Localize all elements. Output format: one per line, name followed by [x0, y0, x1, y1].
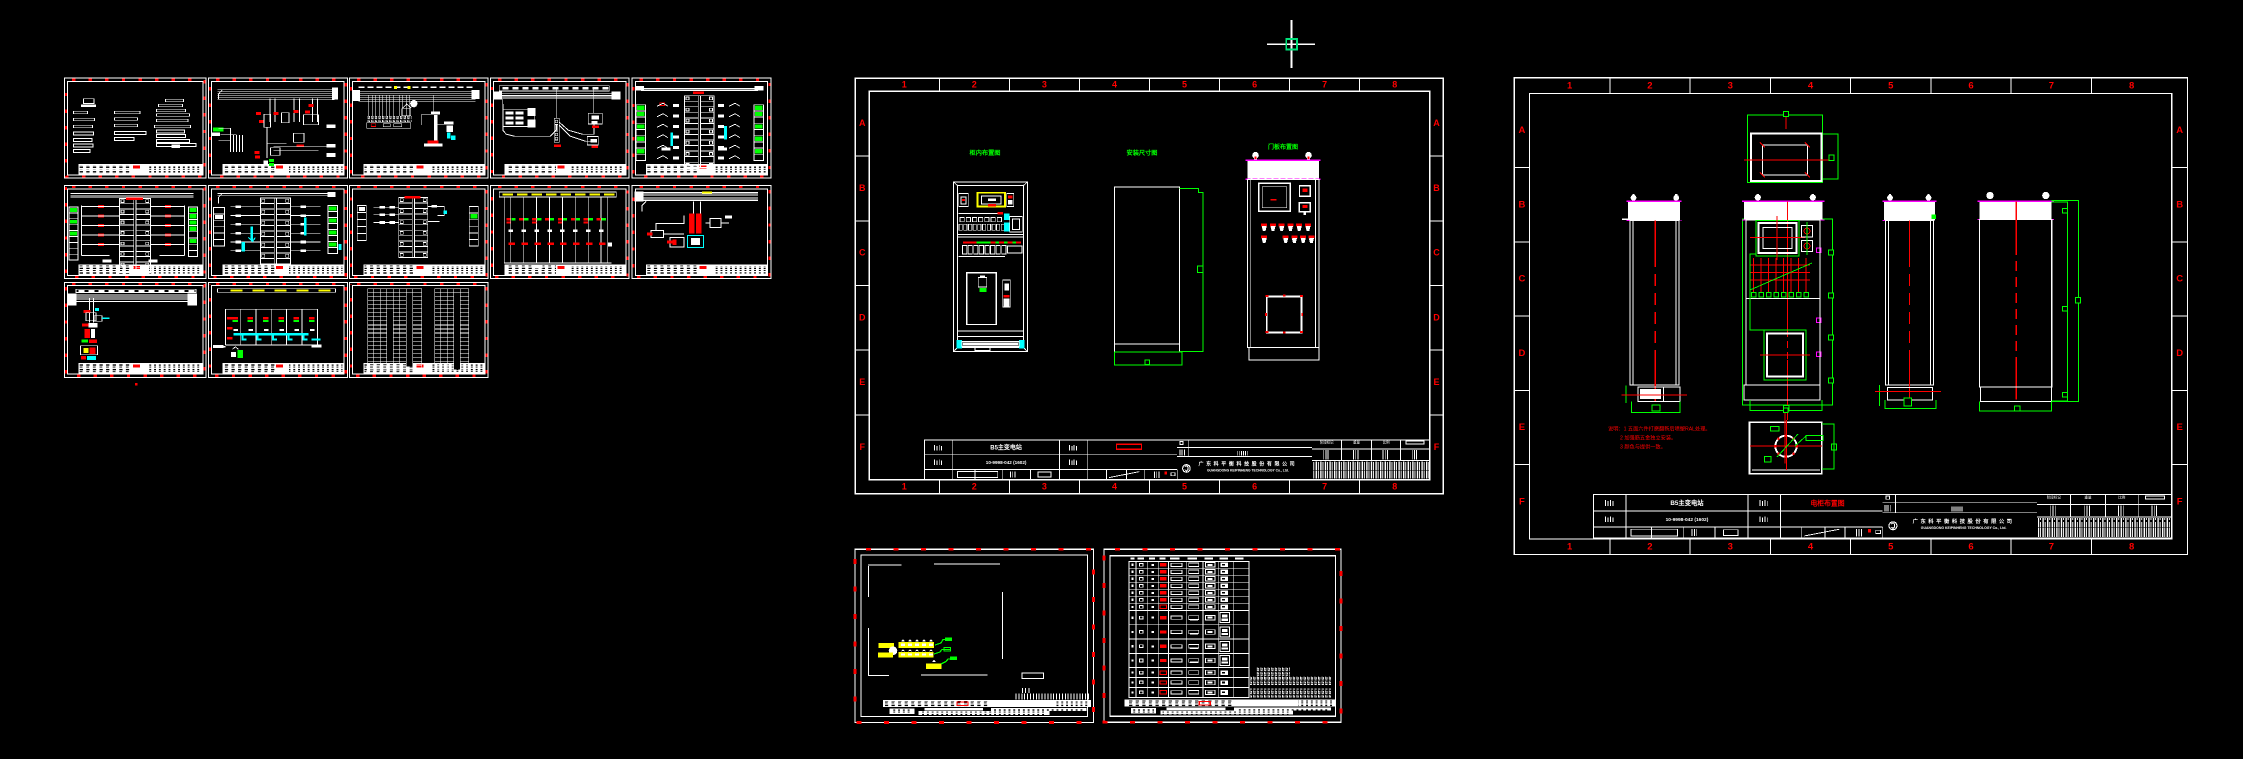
svg-text:E: E — [2176, 422, 2182, 433]
svg-text:8: 8 — [1392, 482, 1397, 492]
svg-text:B5主变电站: B5主变电站 — [1670, 498, 1704, 507]
svg-text:广东科平衡科技股份有限公司: 广东科平衡科技股份有限公司 — [1198, 461, 1297, 468]
svg-text:重量: 重量 — [1353, 440, 1360, 445]
svg-text:B: B — [1433, 183, 1440, 193]
svg-text:10-9998-042 (1602): 10-9998-042 (1602) — [1666, 517, 1709, 523]
svg-text:7: 7 — [1322, 80, 1327, 90]
svg-text:B: B — [859, 183, 866, 193]
svg-text:10-9998-042 (1602): 10-9998-042 (1602) — [986, 460, 1027, 465]
svg-text:安装尺寸图: 安装尺寸图 — [1127, 149, 1158, 157]
svg-text:阶段标记: 阶段标记 — [2047, 494, 2062, 499]
svg-text:C: C — [1433, 248, 1440, 258]
svg-text:F: F — [860, 442, 866, 452]
svg-text:7: 7 — [2049, 80, 2054, 91]
svg-text:2 加强筋五金独立安装。: 2 加强筋五金独立安装。 — [1620, 434, 1676, 442]
svg-text:1: 1 — [1567, 542, 1573, 553]
svg-text:3: 3 — [1042, 482, 1047, 492]
svg-text:D: D — [2176, 348, 2183, 359]
svg-text:8: 8 — [2129, 80, 2134, 91]
svg-text:A: A — [1518, 125, 1525, 136]
svg-text:8: 8 — [2129, 542, 2134, 553]
svg-text:F: F — [1434, 442, 1440, 452]
svg-text:4: 4 — [1112, 80, 1117, 90]
svg-text:A: A — [2176, 125, 2183, 136]
svg-text:5: 5 — [1888, 80, 1894, 91]
svg-text:1: 1 — [902, 80, 907, 90]
svg-text:F: F — [2177, 496, 2183, 507]
svg-text:说明：1 五面六件打磨翻新后喷塑RAL处理。: 说明：1 五面六件打磨翻新后喷塑RAL处理。 — [1608, 425, 1711, 433]
svg-text:8: 8 — [1392, 80, 1397, 90]
svg-text:GUANGDONG KEIPINHENG TECHNOLOG: GUANGDONG KEIPINHENG TECHNOLOGY Co., Ltd… — [1921, 526, 2007, 530]
svg-text:比例: 比例 — [2118, 494, 2126, 499]
svg-text:1: 1 — [902, 482, 907, 492]
svg-text:GUANGDONG KEIPINHENG TECHNOLOG: GUANGDONG KEIPINHENG TECHNOLOGY Co., Ltd… — [1207, 469, 1289, 473]
svg-text:A: A — [1433, 118, 1440, 128]
svg-text:6: 6 — [1252, 482, 1257, 492]
svg-text:门板布置图: 门板布置图 — [1268, 143, 1298, 151]
svg-text:柜内布置图: 柜内布置图 — [969, 149, 1001, 157]
svg-text:3: 3 — [1728, 80, 1733, 91]
svg-text:3: 3 — [1042, 80, 1047, 90]
svg-text:B5主变电站: B5主变电站 — [990, 444, 1022, 452]
svg-text:4: 4 — [1808, 542, 1814, 553]
svg-text:6: 6 — [1968, 80, 1973, 91]
svg-text:E: E — [1434, 377, 1440, 387]
svg-text:1: 1 — [1567, 80, 1573, 91]
svg-text:C: C — [2176, 274, 2183, 285]
svg-text:电柜布置图: 电柜布置图 — [1810, 498, 1844, 507]
svg-text:4: 4 — [1112, 482, 1117, 492]
svg-text:5: 5 — [1182, 80, 1187, 90]
svg-text:阶段标记: 阶段标记 — [1320, 440, 1334, 445]
svg-text:比例: 比例 — [1383, 440, 1390, 445]
svg-text:广东科平衡科技股份有限公司: 广东科平衡科技股份有限公司 — [1913, 517, 2015, 525]
svg-text:4: 4 — [1808, 80, 1814, 91]
svg-text:D: D — [1433, 312, 1440, 322]
svg-text:5: 5 — [1182, 482, 1187, 492]
svg-text:6: 6 — [1252, 80, 1257, 90]
svg-text:D: D — [1518, 348, 1525, 359]
svg-text:3 颜色与提供一致。: 3 颜色与提供一致。 — [1620, 443, 1666, 451]
svg-text:C: C — [859, 248, 866, 258]
svg-text:重量: 重量 — [2084, 494, 2092, 499]
svg-text:E: E — [859, 377, 865, 387]
svg-text:C: C — [1518, 274, 1525, 285]
svg-text:A: A — [859, 118, 866, 128]
svg-text:3: 3 — [1728, 542, 1733, 553]
svg-text:6: 6 — [1968, 542, 1973, 553]
svg-text:2: 2 — [1647, 80, 1652, 91]
svg-text:2: 2 — [1647, 542, 1652, 553]
svg-text:7: 7 — [2049, 542, 2054, 553]
svg-text:D: D — [859, 312, 866, 322]
svg-text:7: 7 — [1322, 482, 1327, 492]
svg-text:E: E — [1519, 422, 1525, 433]
svg-text:2: 2 — [972, 482, 977, 492]
svg-text:2: 2 — [972, 80, 977, 90]
svg-text:F: F — [1519, 496, 1525, 507]
svg-text:B: B — [1518, 199, 1525, 210]
svg-text:5: 5 — [1888, 542, 1894, 553]
svg-text:B: B — [2176, 199, 2183, 210]
